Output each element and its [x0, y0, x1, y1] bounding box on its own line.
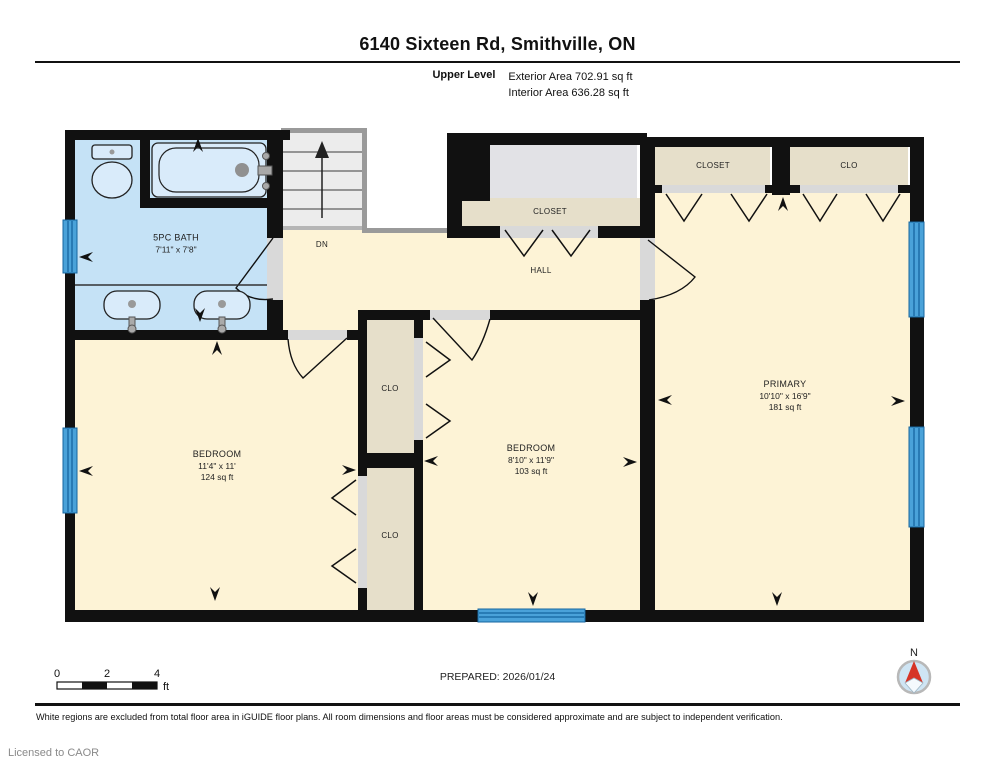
clo-lower-label: CLO — [381, 531, 398, 541]
hall-closet-label: CLOSET — [533, 207, 567, 217]
primary-label: PRIMARY 10'10" x 16'9" 181 sq ft — [759, 379, 810, 413]
licensed-text: Licensed to CAOR — [8, 747, 99, 759]
bedroom-left-label: BEDROOM 11'4" x 11' 124 sq ft — [193, 449, 242, 483]
floorplan-page: 6140 Sixteen Rd, Smithville, ON Upper Le… — [0, 0, 995, 768]
prepared-date: PREPARED: 2026/01/24 — [0, 671, 995, 683]
footer-divider — [35, 703, 960, 706]
floorplan-drawing — [0, 0, 995, 768]
bedroom-middle-label: BEDROOM 8'10" x 11'9" 103 sq ft — [507, 443, 556, 477]
clo-upper-label: CLO — [381, 384, 398, 394]
compass-north-label: N — [910, 647, 918, 659]
scale-bar — [57, 682, 157, 689]
hall-label: HALL — [530, 266, 551, 276]
primary-closet-right-label: CLO — [840, 161, 857, 171]
disclaimer-text: White regions are excluded from total fl… — [36, 712, 783, 722]
bath-label: 5PC BATH 7'11" x 7'8" — [153, 233, 199, 256]
stairs-dn-label: DN — [316, 240, 328, 250]
primary-closet-left-label: CLOSET — [696, 161, 730, 171]
